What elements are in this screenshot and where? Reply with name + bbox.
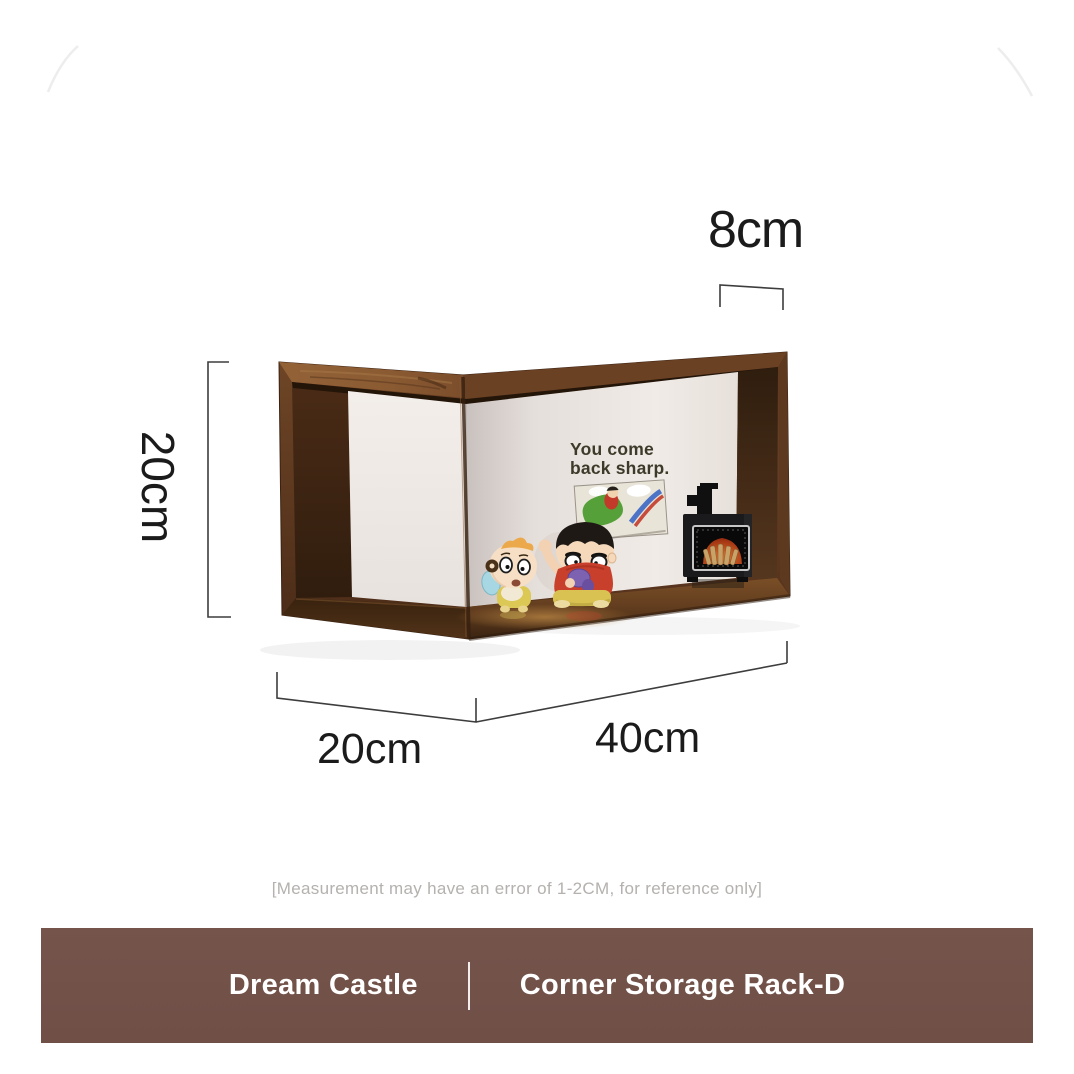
dimension-label-height: 20cm <box>135 431 181 543</box>
wall-slogan: You come back sharp. <box>570 440 669 478</box>
top-depth-bracket <box>720 285 783 310</box>
interior-wall-left <box>348 391 466 607</box>
banner-divider <box>468 962 470 1010</box>
height-bracket <box>208 362 231 617</box>
dimension-label-top-depth: 8cm <box>708 204 803 256</box>
background-marks <box>48 46 1032 96</box>
brand-name: Dream Castle <box>229 969 418 1002</box>
dimension-label-width: 40cm <box>595 717 700 760</box>
wall-slogan-line2: back sharp. <box>570 459 669 478</box>
dimension-label-left-depth: 20cm <box>317 728 422 771</box>
corner-shelf <box>260 352 800 660</box>
product-image: 8cm 20cm 20cm 40cm You come back sharp. … <box>0 0 1074 1074</box>
wall-slogan-line1: You come <box>570 440 669 459</box>
brand-banner: Dream Castle Corner Storage Rack-D <box>41 928 1033 1043</box>
shelf-inner-left-face <box>292 382 352 598</box>
product-name: Corner Storage Rack-D <box>520 969 845 1002</box>
measurement-disclaimer: [Measurement may have an error of 1-2CM,… <box>0 879 1034 899</box>
